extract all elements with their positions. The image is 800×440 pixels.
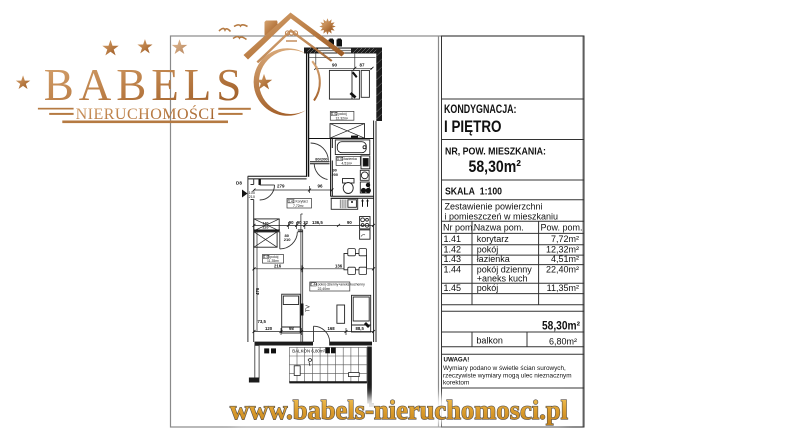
svg-text:88,5: 88,5	[356, 326, 365, 331]
svg-text:73,5: 73,5	[258, 319, 267, 324]
svg-text:NR, POW. MIESZKANIA:: NR, POW. MIESZKANIA:	[445, 147, 546, 158]
svg-text:pokój: pokój	[477, 244, 499, 254]
svg-text:www.babels-nieruchomosci.pl: www.babels-nieruchomosci.pl	[230, 394, 568, 425]
svg-text:58,30m²: 58,30m²	[542, 321, 580, 333]
svg-text:i pomieszczeń w mieszkaniu: i pomieszczeń w mieszkaniu	[445, 211, 559, 221]
svg-text:1.45: 1.45	[444, 283, 462, 293]
svg-text:+aneks kuch: +aneks kuch	[477, 274, 528, 284]
svg-text:476: 476	[255, 287, 260, 295]
svg-text:I PIĘTRO: I PIĘTRO	[444, 118, 502, 136]
svg-text:11,35m²: 11,35m²	[547, 283, 579, 293]
svg-text:Wymiary podano w świetle ścian: Wymiary podano w świetle ścian surowych,	[443, 365, 566, 372]
svg-text:łazienka: łazienka	[477, 254, 510, 264]
svg-text:279: 279	[277, 184, 285, 189]
svg-text:80/200: 80/200	[315, 156, 328, 161]
svg-text:58,30m²: 58,30m²	[469, 158, 522, 176]
svg-text:Nazwa pom.: Nazwa pom.	[474, 223, 524, 233]
svg-text:90: 90	[347, 220, 352, 225]
svg-text:korytarz: korytarz	[477, 234, 510, 244]
svg-text:210: 210	[249, 195, 255, 199]
svg-text:220: 220	[263, 225, 269, 229]
svg-text:rzeczywiste wymiary mogą ulec: rzeczywiste wymiary mogą ulec nieznaczny…	[443, 373, 572, 380]
svg-text:1.41: 1.41	[444, 234, 462, 244]
svg-text:TV: TV	[306, 305, 312, 312]
svg-text:12,32m²: 12,32m²	[546, 244, 579, 254]
svg-text:98: 98	[289, 326, 294, 331]
svg-text:136,5: 136,5	[312, 220, 323, 225]
svg-text:6,80m²: 6,80m²	[549, 337, 577, 347]
svg-text:UWAGA!: UWAGA!	[444, 357, 470, 364]
svg-text:korektom: korektom	[443, 380, 469, 387]
svg-text:22,40m²: 22,40m²	[546, 264, 579, 274]
svg-text:NIERUCHOMOŚCI: NIERUCHOMOŚCI	[76, 104, 216, 123]
svg-text:136: 136	[335, 263, 343, 268]
svg-text:120: 120	[265, 326, 273, 331]
svg-text:Nr pom.: Nr pom.	[443, 223, 475, 233]
svg-text:pokój: pokój	[477, 283, 499, 293]
svg-text:D8: D8	[236, 180, 242, 185]
svg-text:11,35m²: 11,35m²	[267, 259, 280, 263]
svg-text:BABELS: BABELS	[44, 60, 247, 110]
svg-text:SKALA 1:100: SKALA 1:100	[445, 186, 502, 198]
svg-text:216: 216	[274, 263, 282, 268]
svg-text:1.44: 1.44	[311, 283, 317, 287]
svg-text:168: 168	[328, 326, 336, 331]
svg-text:Zestawienie powierzchni: Zestawienie powierzchni	[445, 202, 543, 212]
svg-text:Pow. pom.: Pow. pom.	[541, 223, 583, 233]
svg-text:210: 210	[284, 237, 291, 242]
svg-text:96: 96	[318, 184, 324, 189]
svg-text:4,51m²: 4,51m²	[551, 254, 579, 264]
svg-text:4,51m²: 4,51m²	[342, 161, 353, 165]
svg-text:1.42: 1.42	[444, 244, 462, 254]
svg-text:22,40m²: 22,40m²	[318, 287, 331, 291]
svg-text:7,72m²: 7,72m²	[293, 204, 304, 208]
svg-text:Korytarz: Korytarz	[296, 199, 309, 203]
svg-text:7,72m²: 7,72m²	[551, 234, 579, 244]
svg-text:1.44: 1.44	[444, 264, 462, 274]
svg-text:KONDYGNACJA:: KONDYGNACJA:	[444, 102, 517, 116]
svg-text:12,32m²: 12,32m²	[336, 116, 349, 120]
svg-text:1.43: 1.43	[444, 254, 462, 264]
svg-text:balkon: balkon	[476, 336, 503, 346]
svg-text:90: 90	[332, 63, 338, 68]
svg-text:1.41: 1.41	[288, 199, 294, 203]
svg-text:BALKON 6,80m²: BALKON 6,80m²	[292, 348, 325, 353]
svg-text:87: 87	[360, 63, 366, 68]
svg-text:200: 200	[332, 173, 338, 177]
